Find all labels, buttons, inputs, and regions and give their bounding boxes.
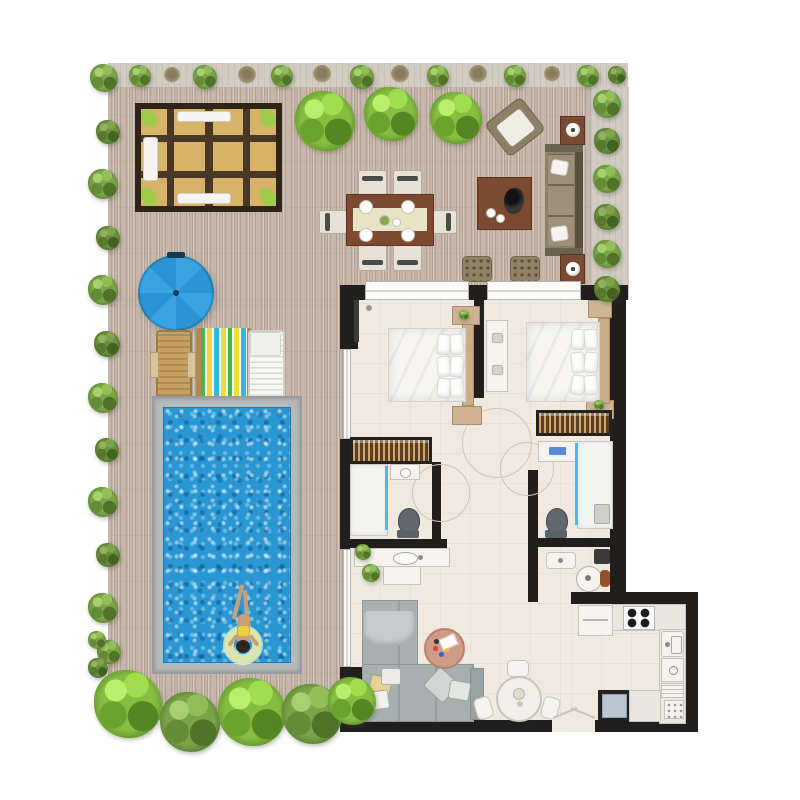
plate (359, 228, 373, 242)
cooktop-4-burners (623, 606, 655, 630)
twig-plant (238, 66, 256, 84)
swimmer-hair (236, 640, 250, 653)
potted-plant (594, 400, 604, 410)
pergola-plant-tr (260, 109, 276, 127)
basin (400, 468, 411, 478)
tree (218, 678, 286, 746)
pergola-beam-v1 (167, 109, 174, 206)
shower-fixture (594, 504, 610, 524)
bush (594, 128, 620, 154)
bedroom2-nightstand-top (588, 300, 612, 318)
side-table-lamp-bottom (560, 254, 585, 284)
bush (593, 90, 621, 118)
bush (94, 331, 120, 357)
wall-bath2-bottom (538, 538, 612, 547)
pillow (449, 377, 465, 398)
pool-water (163, 407, 291, 663)
dishwasher-frame (598, 690, 629, 720)
washer-display (549, 447, 566, 455)
dining-chair-bottom-2 (393, 243, 422, 271)
pergola-beam-h2 (141, 171, 276, 178)
bush (96, 543, 120, 567)
bush (88, 383, 118, 413)
pergola-beam-v2 (243, 109, 250, 206)
toy-red (433, 646, 438, 651)
tree (295, 91, 355, 151)
plate (401, 200, 415, 214)
tree (94, 670, 162, 738)
bush (88, 487, 118, 517)
living-sideboard (383, 566, 421, 585)
door-arc-bath1 (412, 464, 470, 522)
bathroom2-shower-glass (575, 443, 578, 525)
deck-chair-striped (196, 328, 252, 399)
potted-plant (459, 310, 469, 320)
bush (88, 658, 108, 678)
toy-blue (439, 652, 444, 657)
salad-bowl (379, 215, 390, 226)
sofa-back (575, 144, 583, 256)
laundry-bottle (600, 570, 610, 587)
bathroom1-shower-glass (385, 466, 388, 530)
pillow (449, 334, 464, 356)
oven-dial (669, 666, 678, 675)
twig-plant (313, 65, 331, 83)
wall-kitchen-top (571, 592, 698, 604)
bush (95, 438, 119, 462)
lounger-wood-arm-left (150, 352, 159, 378)
wall-kitchen-right (684, 602, 698, 732)
bedroom1-bed (388, 328, 466, 402)
pouf-2 (510, 256, 540, 282)
bush (96, 120, 120, 144)
laundry-sink (576, 566, 602, 592)
round-coffee-table (424, 628, 465, 669)
lounger-white-headrest (250, 332, 281, 356)
sofa-armrest-top (545, 144, 583, 152)
tree (430, 92, 482, 144)
plate (401, 228, 415, 242)
table-setting-small (517, 701, 523, 707)
pillow-light (448, 679, 472, 701)
console-item (492, 365, 503, 375)
laundry-bin (594, 549, 610, 564)
sink-basin (671, 636, 682, 654)
bush (88, 169, 118, 199)
bathroom2-toilet-tank (545, 530, 567, 538)
bush (129, 65, 151, 87)
dishwasher-panel (602, 694, 627, 718)
pergola-plant-bl (141, 188, 157, 206)
kitchen-drawers (661, 683, 684, 698)
bush (88, 593, 118, 623)
cup (496, 214, 505, 223)
vanity-basin (393, 552, 418, 565)
twig-plant (164, 67, 180, 83)
bush (271, 65, 293, 87)
bush (88, 275, 118, 305)
terrace-window-1 (365, 281, 469, 300)
pergola-plant-tl (141, 109, 157, 127)
twig-plant (391, 65, 409, 83)
pouf-1 (462, 256, 492, 282)
pillow (583, 374, 599, 395)
bathroom1-shower (350, 464, 388, 536)
bush (96, 226, 120, 250)
sink-faucet (665, 642, 670, 647)
twig-plant (469, 65, 487, 83)
pillow (583, 352, 598, 374)
sofa-pillow-1 (550, 159, 569, 177)
parasol (138, 255, 214, 331)
sofa-pillow-2 (550, 225, 569, 242)
bush (593, 165, 621, 193)
swimmer-swimsuit (238, 626, 249, 636)
refrigerator (578, 605, 613, 636)
bush (427, 65, 449, 87)
tree (328, 677, 376, 725)
entrance-threshold (552, 718, 595, 732)
bathroom1-toilet-tank (397, 530, 419, 538)
bedroom1-nightstand-bottom (452, 406, 482, 425)
bush (88, 631, 106, 649)
console-item (492, 333, 503, 343)
kitchen-counter-bottom (629, 690, 661, 722)
potted-plant (362, 564, 380, 582)
bedroom2-wardrobe (536, 410, 612, 436)
pergola (135, 103, 282, 212)
potted-plant (355, 544, 371, 560)
glass-wall-living (343, 549, 351, 667)
pergola-bench-bottom (177, 193, 231, 204)
bush (594, 204, 620, 230)
outdoor-dining-table (346, 194, 434, 246)
bush (594, 276, 620, 302)
pillow (583, 329, 598, 351)
floor-plan-canvas (0, 0, 800, 800)
pergola-beam-h1 (141, 135, 276, 142)
round-dining-table (496, 676, 542, 722)
wall-left-bathroom (340, 439, 350, 549)
dining-chair-bottom-1 (358, 243, 387, 271)
outdoor-coffee-table (477, 177, 532, 230)
side-table-lamp-top (560, 116, 585, 145)
cup (486, 208, 496, 218)
outdoor-sofa (545, 144, 583, 256)
bathroom2-washer (538, 441, 578, 462)
bush (593, 240, 621, 268)
decor-bowl (504, 188, 524, 214)
swimming-pool (152, 396, 302, 674)
sofa-blanket (364, 611, 414, 647)
bathroom1-washbasin (390, 464, 420, 480)
bush (608, 66, 626, 84)
dining-chair-left (319, 210, 347, 234)
lamp (566, 123, 580, 137)
pergola-bench-top (177, 111, 231, 122)
kitchen-oven (661, 658, 684, 682)
bush (577, 65, 599, 87)
terrace-window-2 (487, 281, 581, 300)
fridge-handle (583, 619, 608, 621)
glass-wall-bedroom-1 (343, 349, 351, 439)
toy-yellow (445, 648, 449, 652)
tray-dot (558, 558, 563, 563)
bedroom2-console (486, 320, 508, 392)
lamp (566, 262, 580, 276)
bush (504, 65, 526, 87)
dining-chair-top (507, 660, 529, 677)
kitchen-small-appliance (664, 700, 684, 719)
pergola-center-beam (205, 109, 213, 206)
laundry-soap-tray (546, 552, 576, 569)
pillow-white-2 (381, 668, 401, 685)
table-setting (513, 688, 525, 700)
bush (193, 65, 217, 89)
pergola-plant-br (260, 188, 276, 206)
lounge-chair-cushion (496, 108, 536, 147)
tree (364, 87, 418, 141)
bedroom1-wardrobe (350, 437, 432, 464)
toy-dark (434, 639, 439, 644)
center-bowl (392, 218, 401, 227)
sprinkler-dot (366, 305, 372, 311)
twig-plant (544, 66, 560, 82)
kitchen-sink (661, 631, 684, 657)
vanity-faucet (418, 555, 423, 560)
tv-panel (354, 300, 359, 342)
lounger-wood-arm-right (187, 352, 196, 378)
plate (359, 200, 373, 214)
bush (90, 64, 118, 92)
bedroom2-bed (526, 322, 600, 402)
pillow (449, 356, 464, 378)
bush (160, 692, 220, 752)
bathroom2-shower (577, 441, 613, 529)
sink-drain (585, 575, 591, 581)
bush (350, 65, 374, 89)
pergola-bench-left (143, 137, 158, 181)
